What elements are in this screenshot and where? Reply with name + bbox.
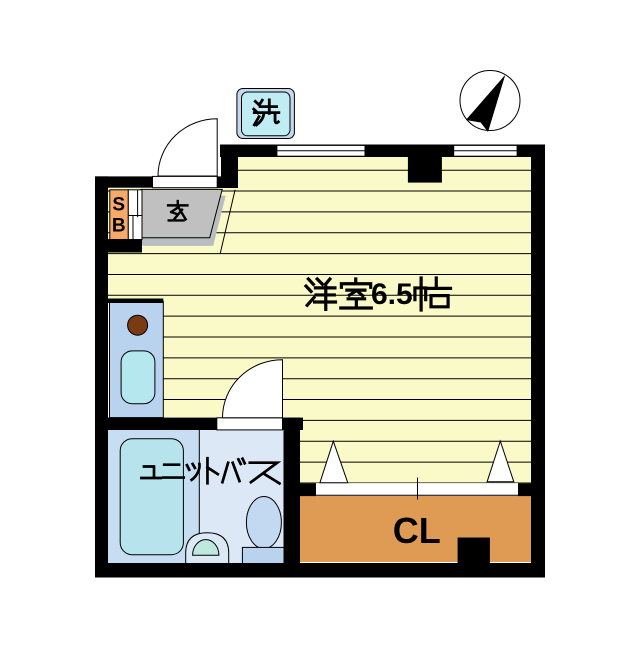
svg-text:6.5: 6.5 xyxy=(371,278,413,311)
svg-text:CL: CL xyxy=(393,510,441,551)
svg-text:B: B xyxy=(112,216,126,237)
svg-text:S: S xyxy=(112,195,125,216)
